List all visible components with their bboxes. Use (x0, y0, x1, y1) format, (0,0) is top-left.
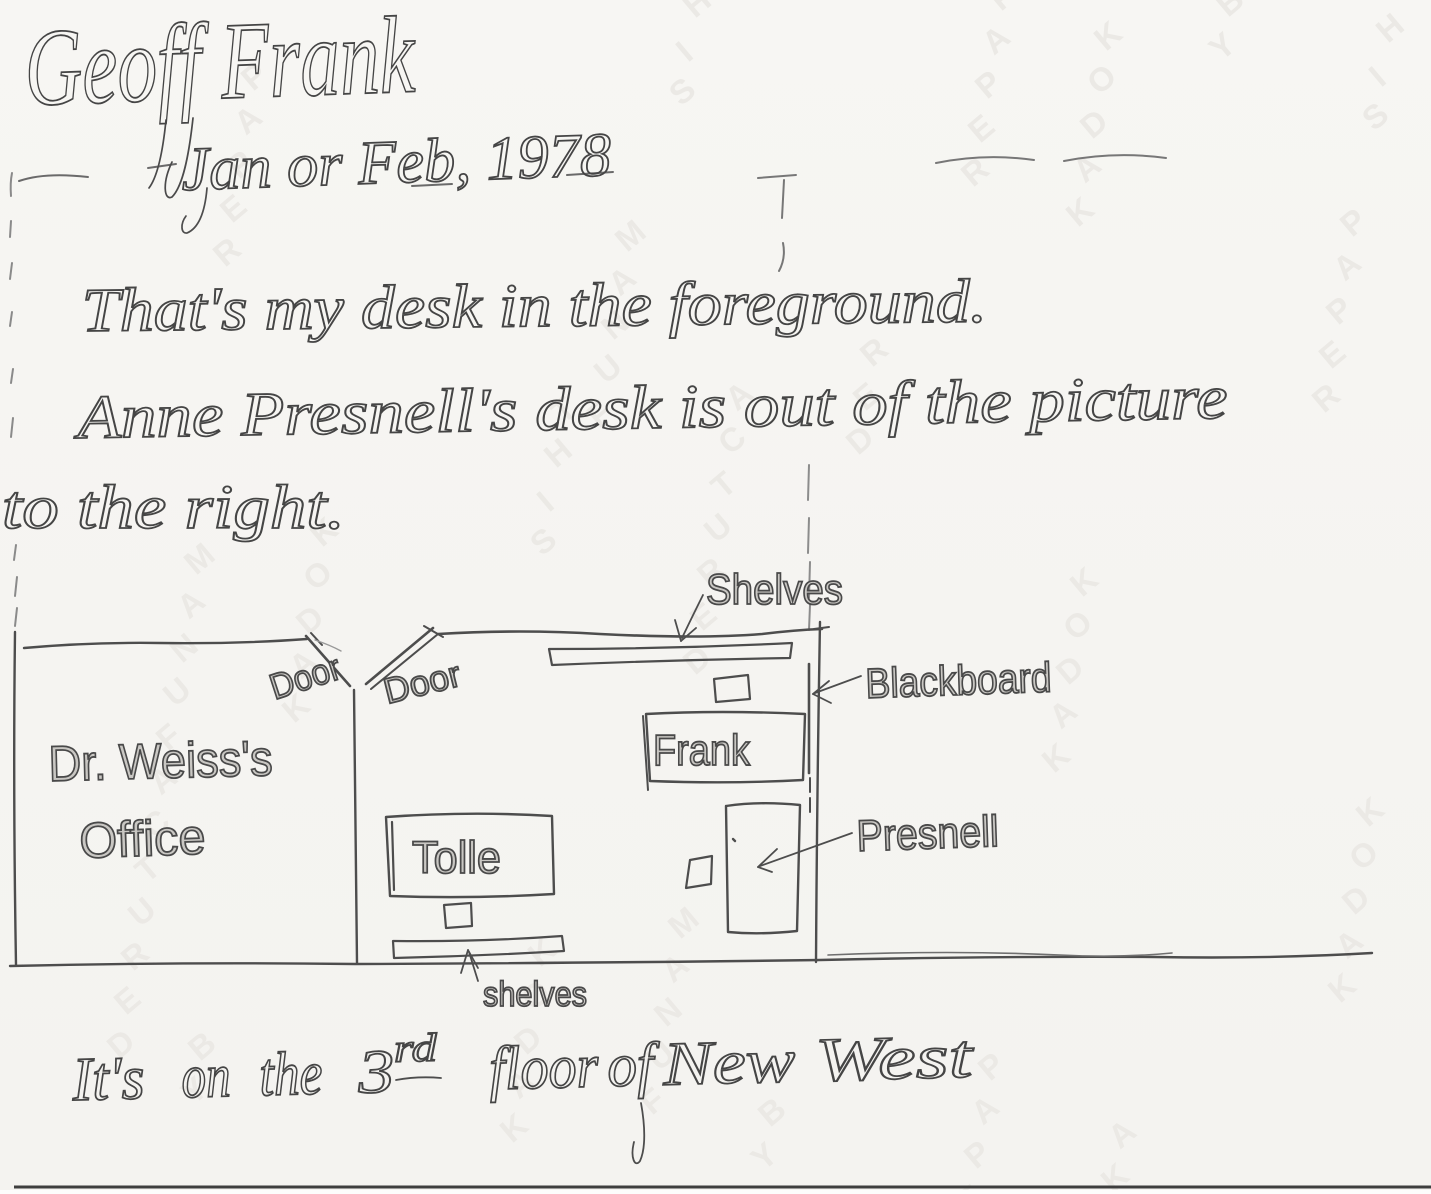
svg-text:3: 3 (356, 1038, 395, 1107)
svg-text:Shelves: Shelves (706, 566, 843, 614)
svg-text:to the right.: to the right. (2, 474, 345, 542)
svg-text:Office: Office (78, 809, 206, 869)
svg-text:the: the (259, 1040, 324, 1110)
svg-text:Frank: Frank (653, 726, 751, 775)
svg-text:Blackboard: Blackboard (865, 654, 1053, 707)
svg-text:on: on (181, 1042, 232, 1111)
svg-text:Geoff Frank: Geoff Frank (23, 0, 419, 129)
svg-text:Dr. Weiss's: Dr. Weiss's (48, 730, 273, 792)
svg-text:New: New (661, 1027, 796, 1098)
svg-text:Tolle: Tolle (412, 832, 501, 883)
svg-text:That's my desk in the foregrou: That's my desk in the foreground. (81, 268, 987, 345)
svg-text:floor: floor (488, 1032, 600, 1103)
svg-text:shelves: shelves (483, 975, 587, 1014)
svg-text:Presnell: Presnell (856, 807, 1000, 861)
svg-text:rd: rd (393, 1025, 438, 1071)
svg-text:It's: It's (71, 1044, 146, 1114)
svg-text:West: West (814, 1023, 975, 1095)
